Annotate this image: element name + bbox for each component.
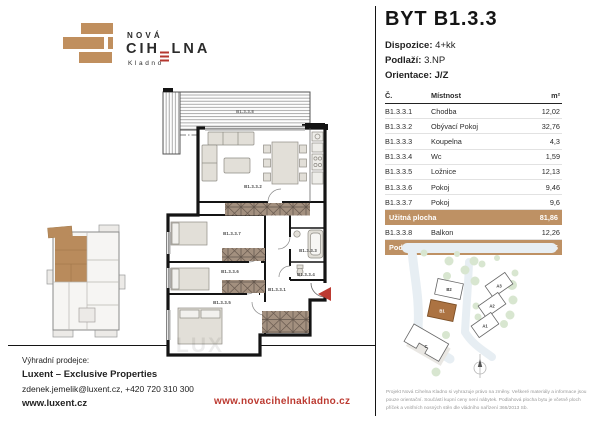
table-row: B1.3.3.4Wc1,59 bbox=[385, 150, 562, 165]
cell-no: B1.3.3.6 bbox=[385, 183, 431, 192]
cell-area: 1,59 bbox=[524, 152, 560, 161]
cell-room: Pokoj bbox=[431, 198, 524, 207]
unit-fields: Dispozice: 4+kk Podlaží: 3.NP Orientace:… bbox=[385, 38, 456, 83]
label-a1: A1 bbox=[482, 324, 488, 329]
cell-area: 4,3 bbox=[524, 137, 560, 146]
usable-area-label: Užitná plocha bbox=[389, 213, 436, 222]
field-orientace: Orientace: J/Z bbox=[385, 68, 456, 83]
brand-lna: LNA bbox=[171, 41, 210, 57]
brand-name-top: NOVÁ bbox=[127, 31, 163, 40]
contact-heading: Výhradní prodejce: bbox=[22, 356, 194, 365]
apartment-floorplan: B1.3.3.8 B1.3.3.2 B1.3.3.7 B1.3.3.6 B1.3… bbox=[150, 82, 360, 374]
room-area-table: Č. Místnost m² B1.3.3.1Chodba12,02 B1.3.… bbox=[385, 88, 562, 255]
table-row: B1.3.3.7Pokoj9,6 bbox=[385, 195, 562, 210]
label-wc: B1.3.3.4 bbox=[297, 272, 315, 277]
disclaimer-text: Projekt Nová Cihelna Kladno si vyhrazuje… bbox=[386, 389, 592, 413]
field-label: Podlaží: bbox=[385, 55, 421, 66]
contact-email-phone[interactable]: zdenek.jemelik@luxent.cz, +420 720 310 3… bbox=[22, 384, 194, 394]
field-label: Orientace: bbox=[385, 70, 432, 81]
col-area: m² bbox=[524, 91, 560, 100]
cell-room: Obývací Pokoj bbox=[431, 122, 524, 131]
field-value: 3.NP bbox=[424, 55, 445, 66]
brand-cih: CIH bbox=[126, 41, 160, 57]
label-balcony: B1.3.3.8 bbox=[236, 109, 254, 114]
field-label: Dispozice: bbox=[385, 40, 433, 51]
table-row: B1.3.3.3Koupelna4,3 bbox=[385, 134, 562, 149]
col-room: Místnost bbox=[431, 91, 524, 100]
cell-area: 9,6 bbox=[524, 198, 560, 207]
cell-no: B1.3.3.4 bbox=[385, 152, 431, 161]
table-row: B1.3.3.2Obývací Pokoj32,76 bbox=[385, 119, 562, 134]
cell-room: Chodba bbox=[431, 107, 524, 116]
cell-room: Wc bbox=[431, 152, 524, 161]
cell-room: Pokoj bbox=[431, 183, 524, 192]
label-bath: B1.3.3.3 bbox=[299, 248, 317, 253]
label-bedroom: B1.3.3.5 bbox=[213, 300, 231, 305]
cell-no: B1.3.3.5 bbox=[385, 167, 431, 176]
brand-logo: NOVÁ CIHLNA Kladno bbox=[30, 10, 220, 70]
label-living: B1.3.3.2 bbox=[244, 184, 262, 189]
cell-area: 12,02 bbox=[524, 107, 560, 116]
label-hall: B1.3.3.1 bbox=[268, 287, 286, 292]
cell-area: 32,76 bbox=[524, 122, 560, 131]
cell-room: Koupelna bbox=[431, 137, 524, 146]
brick-icon bbox=[81, 23, 113, 34]
table-row: B1.3.3.1Chodba12,02 bbox=[385, 104, 562, 119]
label-c: C bbox=[424, 344, 427, 349]
col-no: Č. bbox=[385, 91, 431, 100]
unit-title: BYT B1.3.3 bbox=[385, 8, 497, 31]
contact-block: Výhradní prodejce: Luxent – Exclusive Pr… bbox=[22, 356, 194, 409]
floor-overview-mini bbox=[33, 220, 139, 342]
cell-no: B1.3.3.1 bbox=[385, 107, 431, 116]
watermark: LUX bbox=[176, 334, 224, 358]
label-a3: A3 bbox=[496, 284, 502, 289]
compass-icon bbox=[474, 354, 486, 378]
brand-city: Kladno bbox=[128, 60, 164, 67]
cell-area: 9,46 bbox=[524, 183, 560, 192]
field-dispozice: Dispozice: 4+kk bbox=[385, 38, 456, 53]
cell-no: B1.3.3.3 bbox=[385, 137, 431, 146]
usable-area-value: 81,86 bbox=[540, 213, 558, 222]
floorplan-sheet: NOVÁ CIHLNA Kladno bbox=[0, 0, 600, 423]
label-a2: A2 bbox=[489, 304, 495, 309]
table-row: B1.3.3.5Ložnice12,13 bbox=[385, 165, 562, 180]
field-podlazi: Podlaží: 3.NP bbox=[385, 53, 456, 68]
brand-name-main: CIHLNA bbox=[126, 41, 210, 61]
usable-area-row: Užitná plocha 81,86 bbox=[385, 210, 562, 225]
label-room7: B1.3.3.7 bbox=[223, 231, 241, 236]
label-room6: B1.3.3.6 bbox=[221, 269, 239, 274]
brick-icon bbox=[108, 37, 113, 49]
project-website-link[interactable]: www.novacihelnakladno.cz bbox=[214, 396, 350, 407]
cell-no: B1.3.3.2 bbox=[385, 122, 431, 131]
brick-icon bbox=[63, 37, 104, 49]
brick-icon bbox=[79, 52, 112, 63]
field-value: 4+kk bbox=[435, 40, 455, 51]
contact-company: Luxent – Exclusive Properties bbox=[22, 369, 194, 380]
label-b2: B2 bbox=[446, 287, 452, 292]
table-row: B1.3.3.6Pokoj9,46 bbox=[385, 180, 562, 195]
label-b1: B1 bbox=[439, 309, 445, 314]
cell-area: 12,13 bbox=[524, 167, 560, 176]
cell-room: Ložnice bbox=[431, 167, 524, 176]
cell-no: B1.3.3.7 bbox=[385, 198, 431, 207]
contact-website-link[interactable]: www.luxent.cz bbox=[22, 398, 194, 409]
vertical-divider bbox=[375, 6, 376, 416]
table-header: Č. Místnost m² bbox=[385, 88, 562, 104]
field-value: J/Z bbox=[435, 70, 449, 81]
site-plan: B2 B1 A3 A2 A1 C bbox=[392, 236, 592, 386]
